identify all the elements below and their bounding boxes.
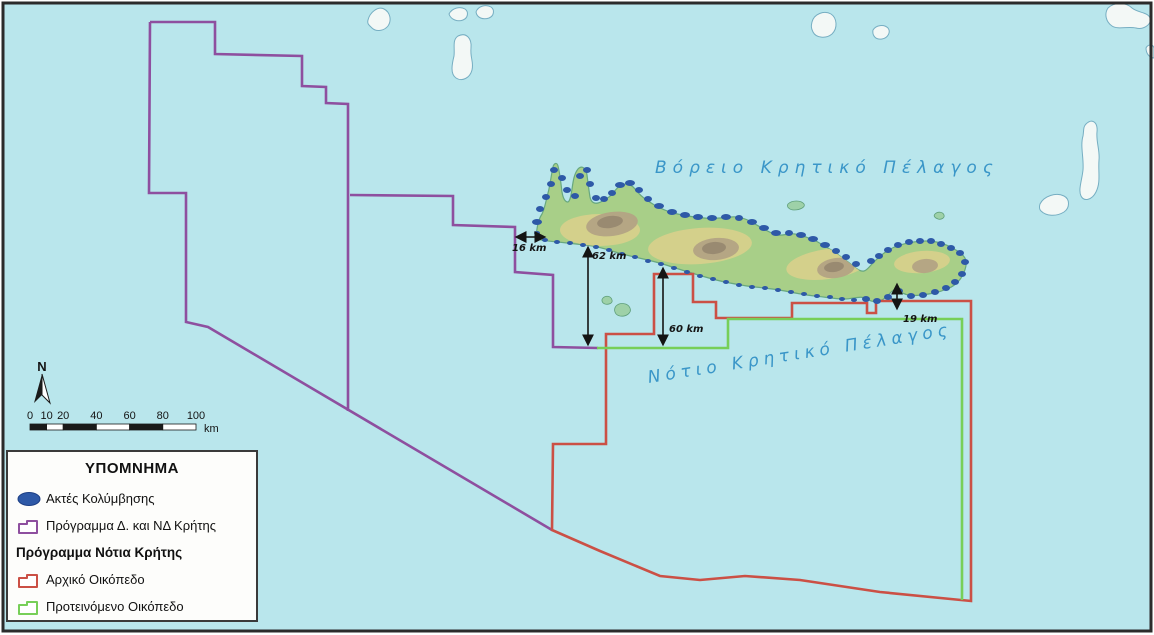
legend-item-label: Προτεινόμενο Οικόπεδο xyxy=(46,599,184,614)
legend-item-swimming-coasts: Ακτές Κολύμβησης xyxy=(16,485,248,512)
north-label: N xyxy=(37,359,46,374)
swimming-coast-icon xyxy=(16,491,46,507)
legend-title: ΥΠΟΜΝΗΜΑ xyxy=(16,460,248,477)
distance-label-60km: 60 km xyxy=(669,324,703,335)
svg-text:km: km xyxy=(204,423,219,435)
legend-item-label: Αρχικό Οικόπεδο xyxy=(46,572,145,587)
north-cretan-sea-label: Βόρειο Κρητικό Πέλαγος xyxy=(655,158,999,178)
legend-item-initial-block: Αρχικό Οικόπεδο xyxy=(16,566,248,593)
green-block-icon xyxy=(16,597,46,617)
red-block-icon xyxy=(16,570,46,590)
distance-label-19km: 19 km xyxy=(903,314,937,325)
legend-item-label: Ακτές Κολύμβησης xyxy=(46,491,155,506)
svg-text:80: 80 xyxy=(157,410,169,422)
purple-block-icon xyxy=(16,516,46,536)
legend-item-program-w-nw-crete: Πρόγραμμα Δ. και ΝΔ Κρήτης xyxy=(16,512,248,539)
legend-item-label: Πρόγραμμα Δ. και ΝΔ Κρήτης xyxy=(46,518,216,533)
svg-text:40: 40 xyxy=(90,410,102,422)
map-page: N 01020406080100km Βόρειο Κρητικό Πέλαγο… xyxy=(0,0,1154,635)
legend-box: ΥΠΟΜΝΗΜΑ Ακτές Κολύμβησης Πρόγραμμα Δ. κ… xyxy=(6,450,258,622)
svg-text:0: 0 xyxy=(27,410,33,422)
svg-text:20: 20 xyxy=(57,410,69,422)
legend-item-proposed-block: Προτεινόμενο Οικόπεδο xyxy=(16,593,248,620)
svg-text:100: 100 xyxy=(187,410,205,422)
distance-label-16km: 16 km xyxy=(512,243,546,254)
legend-subheading-program-south-crete: Πρόγραμμα Νότια Κρήτης xyxy=(16,539,248,566)
svg-text:60: 60 xyxy=(123,410,135,422)
svg-text:10: 10 xyxy=(40,410,52,422)
legend-subheading-label: Πρόγραμμα Νότια Κρήτης xyxy=(16,545,182,560)
distance-label-62km: 62 km xyxy=(592,251,626,262)
